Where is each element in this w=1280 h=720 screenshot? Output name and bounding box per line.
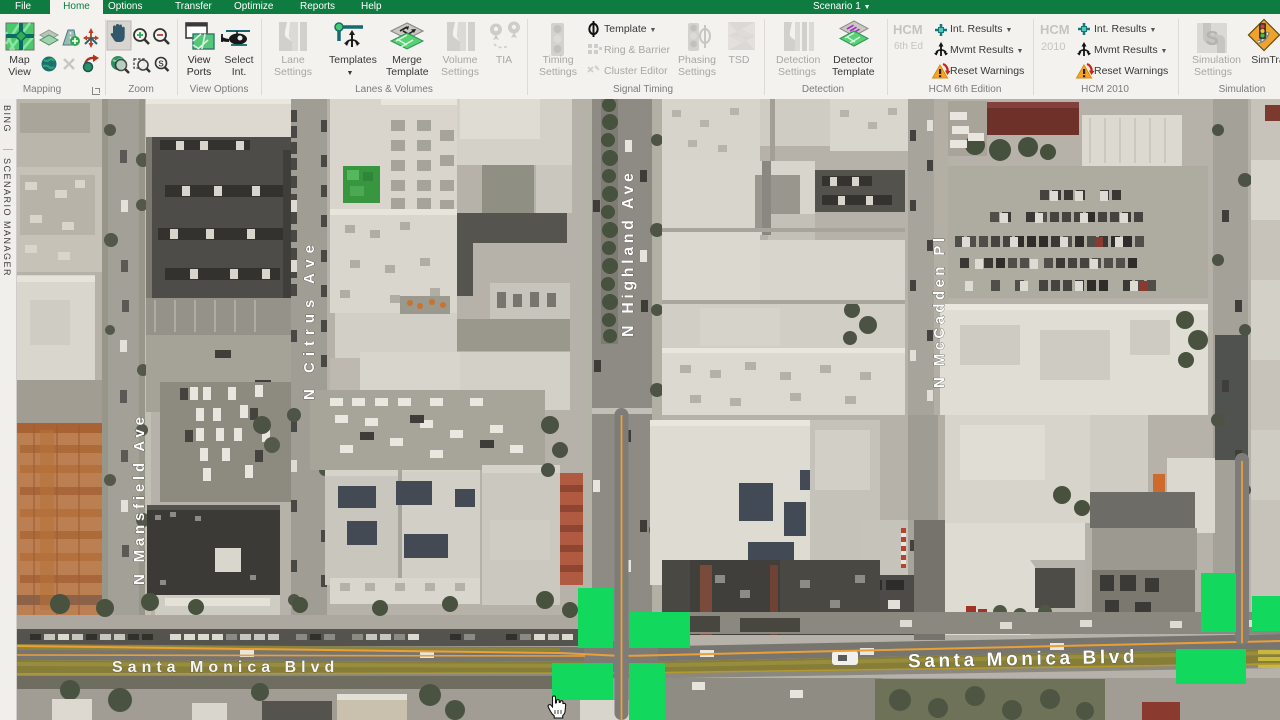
svg-text:N Citrus Ave: N Citrus Ave	[301, 239, 318, 400]
svg-text:N McCadden Pl: N McCadden Pl	[931, 235, 948, 388]
svg-text:Santa Monica Blvd: Santa Monica Blvd	[112, 659, 339, 676]
svg-text:S: S	[1205, 28, 1218, 50]
svg-text:N Highland Ave: N Highland Ave	[620, 170, 637, 337]
svg-text:N Mansfield Ave: N Mansfield Ave	[131, 413, 148, 585]
svg-text:S: S	[158, 60, 164, 69]
